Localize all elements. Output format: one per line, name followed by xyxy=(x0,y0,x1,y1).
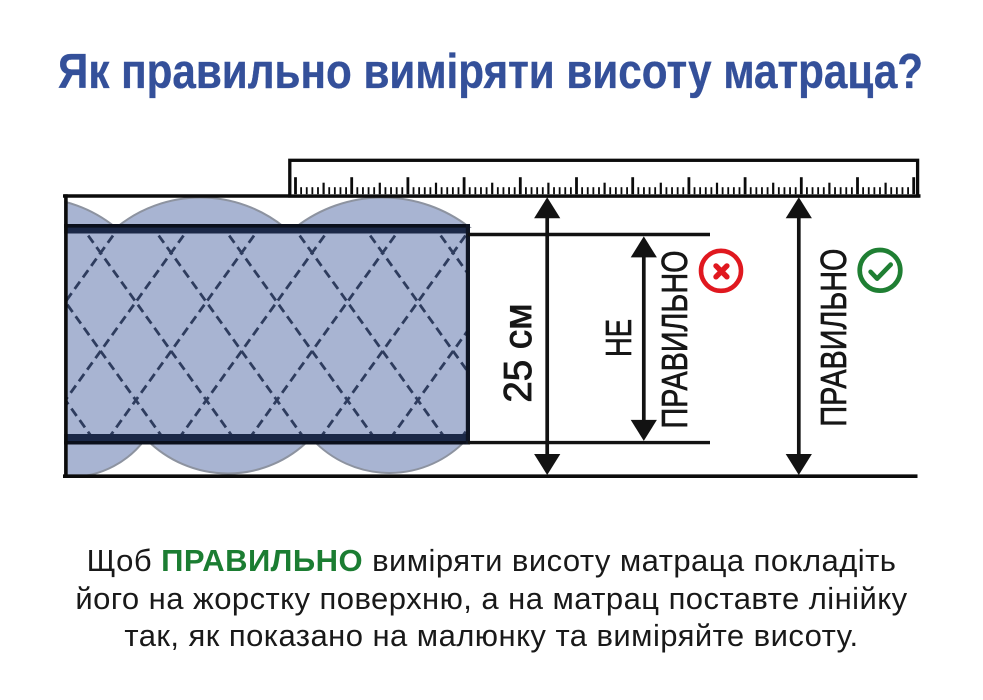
svg-text:25 см: 25 см xyxy=(497,303,540,402)
svg-text:ПРАВИЛЬНО: ПРАВИЛЬНО xyxy=(654,251,695,429)
svg-text:НЕ: НЕ xyxy=(598,319,639,357)
svg-text:ПРАВИЛЬНО: ПРАВИЛЬНО xyxy=(813,249,854,427)
